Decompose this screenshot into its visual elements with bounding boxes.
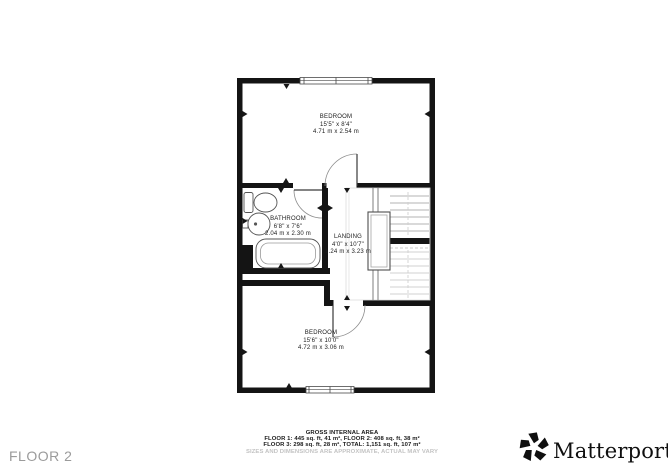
room-dims-imperial: 6'8" x 7'6" — [248, 224, 328, 232]
room-dims-metric: 1.24 m x 3.23 m — [298, 249, 398, 257]
room-name: BEDROOM — [261, 330, 381, 338]
gross-internal-area: GROSS INTERNAL AREA FLOOR 1: 445 sq. ft,… — [192, 430, 492, 455]
room-dims-imperial: 15'5" x 8'4" — [276, 122, 396, 130]
chimney-block — [242, 245, 253, 268]
door-icon — [325, 154, 357, 186]
window-icon — [300, 78, 372, 85]
room-name: LANDING — [298, 234, 398, 242]
room-name: BATHROOM — [248, 216, 328, 224]
room-dims-imperial: 15'6" x 10'0" — [261, 338, 381, 346]
room-label-bedroom-2: BEDROOM 15'6" x 10'0" 4.72 m x 3.06 m — [261, 330, 381, 353]
room-dims-imperial: 4'0" x 10'7" — [298, 242, 398, 250]
matterport-logo: Matterport® — [517, 430, 662, 468]
matterport-wordmark: Matterport® — [553, 439, 668, 463]
room-dims-metric: 4.72 m x 3.06 m — [261, 345, 381, 353]
window-icon — [306, 387, 354, 394]
floorplan-page: BEDROOM 15'5" x 8'4" 4.71 m x 2.54 m BAT… — [0, 0, 668, 472]
toilet-icon — [244, 193, 277, 213]
gia-disclaimer: SIZES AND DIMENSIONS ARE APPROXIMATE, AC… — [192, 449, 492, 455]
matterport-pinwheel-icon — [517, 430, 551, 464]
room-name: BEDROOM — [276, 114, 396, 122]
floor-label: FLOOR 2 — [9, 448, 72, 464]
room-label-bedroom-1: BEDROOM 15'5" x 8'4" 4.71 m x 2.54 m — [276, 114, 396, 137]
door-icon — [294, 190, 322, 218]
room-label-landing: LANDING 4'0" x 10'7" 1.24 m x 3.23 m — [298, 234, 398, 257]
room-dims-metric: 4.71 m x 2.54 m — [276, 129, 396, 137]
